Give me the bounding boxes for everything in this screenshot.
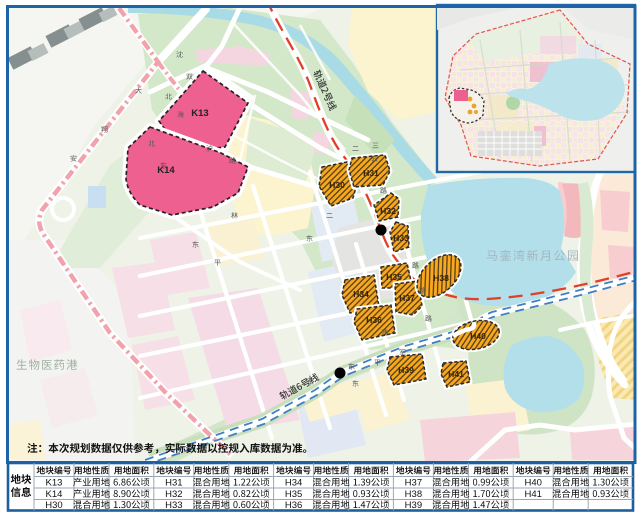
svg-text:H33: H33 <box>393 233 409 243</box>
svg-text:H39: H39 <box>398 365 414 375</box>
svg-text:H39: H39 <box>405 500 422 511</box>
svg-text:H35: H35 <box>386 272 402 282</box>
svg-text:H38: H38 <box>433 273 449 283</box>
svg-text:H37: H37 <box>399 293 415 303</box>
svg-text:H34: H34 <box>353 289 369 299</box>
svg-text:H36: H36 <box>285 500 302 511</box>
svg-text:H34: H34 <box>285 478 302 489</box>
svg-text:K13: K13 <box>191 108 208 119</box>
svg-text:K14: K14 <box>157 165 175 176</box>
svg-text:H30: H30 <box>329 180 345 190</box>
svg-text:K13: K13 <box>46 478 63 489</box>
svg-text:H30: H30 <box>45 500 62 511</box>
svg-text:H35: H35 <box>285 489 302 500</box>
svg-text:K14: K14 <box>46 489 63 500</box>
svg-text:H36: H36 <box>366 315 382 325</box>
svg-text:H31: H31 <box>363 168 379 178</box>
svg-text:H32: H32 <box>165 489 182 500</box>
svg-text:H40: H40 <box>524 478 541 489</box>
svg-text:H32: H32 <box>380 206 396 216</box>
svg-text:H31: H31 <box>165 478 182 489</box>
svg-text:H38: H38 <box>405 489 422 500</box>
svg-text:H37: H37 <box>405 478 422 489</box>
svg-text:H41: H41 <box>524 489 541 500</box>
svg-text:H33: H33 <box>165 500 182 511</box>
svg-text:H41: H41 <box>448 369 464 379</box>
svg-text:H40: H40 <box>470 331 486 341</box>
